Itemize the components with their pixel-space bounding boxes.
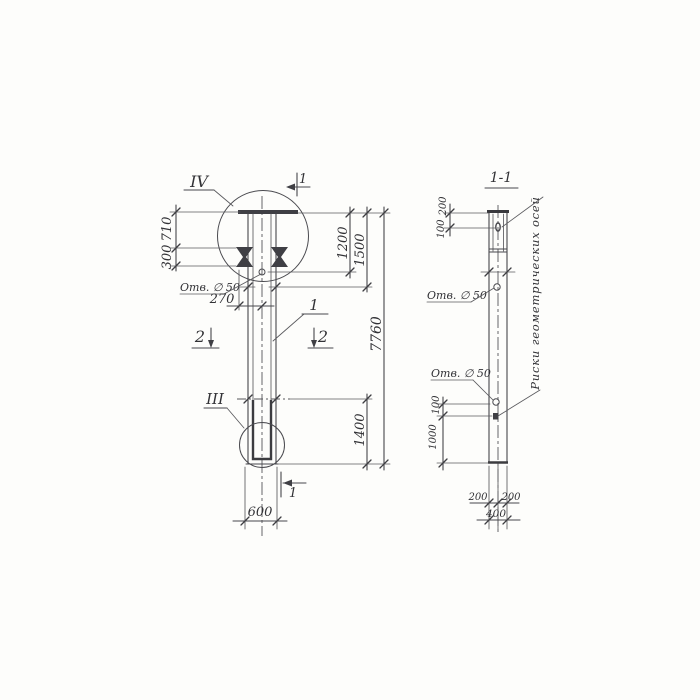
dim-710-300: 710 300 (160, 205, 240, 271)
detail-label-iv: IV (189, 172, 209, 191)
dim-100-top-label: 100 (436, 219, 447, 239)
dim-7760-label: 7760 (369, 316, 385, 352)
section-1-label-bottom: 1 (289, 486, 297, 501)
drawing-sheet: IV III 1 1 2 (0, 0, 700, 700)
dim-600: 600 (233, 467, 287, 529)
detail-callout-III: III (204, 390, 244, 428)
bracket-right (271, 247, 288, 267)
hole-callout-lower: Отв. ∅ 50 (431, 367, 493, 400)
left-view: IV III 1 1 2 (160, 172, 390, 536)
dim-1200-label: 1200 (336, 226, 351, 259)
section-mark-2-left: 2 (192, 327, 219, 348)
dim-100-1000-bottom: 100 1000 (428, 395, 492, 470)
hole-label-upper: Отв. ∅ 50 (427, 289, 487, 302)
section-view: 1-1 Отв. ∅ 50 Отв. (427, 170, 543, 532)
dim-270-label: 270 (209, 292, 235, 307)
dim-710-label: 710 (160, 217, 175, 242)
section-2-label-right: 2 (317, 327, 328, 346)
axes-note-callout: Риски геометрических осей (498, 196, 543, 416)
dim-400-label: 400 (485, 508, 506, 520)
axes-note-label: Риски геометрических осей (528, 196, 542, 390)
section-2-label-left: 2 (194, 327, 205, 346)
hole-label-lower: Отв. ∅ 50 (431, 367, 491, 380)
hole-callout-left: Отв. ∅ 50 (180, 274, 261, 294)
section-title-label: 1-1 (490, 170, 513, 186)
hole-callout-upper: Отв. ∅ 50 (427, 288, 494, 302)
hole-upper (494, 284, 500, 290)
section-mark-2-right: 2 (308, 327, 333, 348)
dim-1500-label: 1500 (353, 233, 368, 266)
dim-200-100-top: 200 100 (436, 196, 495, 239)
bracket-left (236, 247, 253, 267)
hole-lower (493, 399, 499, 405)
detail-callout-IV: IV (184, 172, 233, 206)
dim-right-stack: 1200 1500 7760 1400 (268, 207, 390, 470)
dim-300-label: 300 (160, 245, 175, 270)
section-mark-1-top: 1 (286, 172, 310, 196)
section-title: 1-1 (485, 170, 518, 188)
detail-label-iii: III (205, 390, 225, 408)
dim-bottom-width: 200 200 400 (467, 466, 521, 529)
dim-100-bottom-label: 100 (431, 395, 442, 415)
dim-1000-label: 1000 (428, 424, 439, 450)
dim-200-left-label: 200 (467, 492, 488, 503)
section-1-label-top: 1 (299, 172, 307, 187)
section-mark-1-bottom: 1 (281, 472, 306, 501)
column-outline (236, 210, 372, 464)
dim-200-top-label: 200 (438, 196, 449, 217)
cap-plate (238, 210, 298, 214)
pile-column-drawing: IV III 1 1 2 (0, 0, 700, 700)
dim-1400-label: 1400 (353, 413, 368, 446)
dim-600-label: 600 (248, 505, 273, 520)
part-callout-label: 1 (309, 296, 319, 314)
dim-200-right-label: 200 (500, 492, 521, 503)
